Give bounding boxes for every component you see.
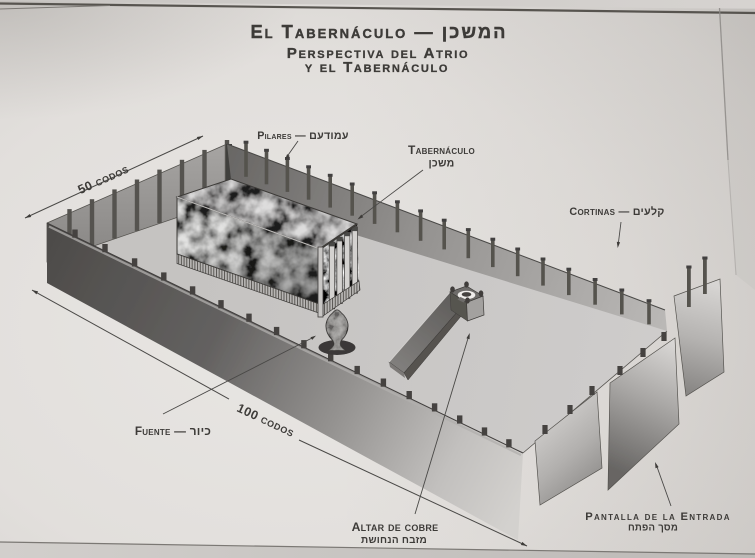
svg-text:El Tabernáculo — המשכן: El Tabernáculo — המשכן: [250, 21, 507, 42]
svg-text:מסך הפתח: מסך הפתח: [628, 523, 678, 534]
svg-text:Pilares — עמודעם: Pilares — עמודעם: [257, 130, 349, 142]
svg-text:Cortinas — קלעים: Cortinas — קלעים: [569, 205, 664, 218]
svg-text:משכן: משכן: [429, 158, 455, 170]
svg-text:Pantalla de la Entrada: Pantalla de la Entrada: [585, 511, 731, 523]
svg-text:מזבח הנחושת: מזבח הנחושת: [361, 535, 427, 546]
svg-text:y el Tabernáculo: y el Tabernáculo: [305, 59, 449, 76]
svg-text:Fuente — כיור: Fuente — כיור: [135, 424, 211, 438]
svg-text:Tabernáculo: Tabernáculo: [408, 143, 475, 157]
svg-text:Altar de cobre: Altar de cobre: [352, 520, 439, 534]
